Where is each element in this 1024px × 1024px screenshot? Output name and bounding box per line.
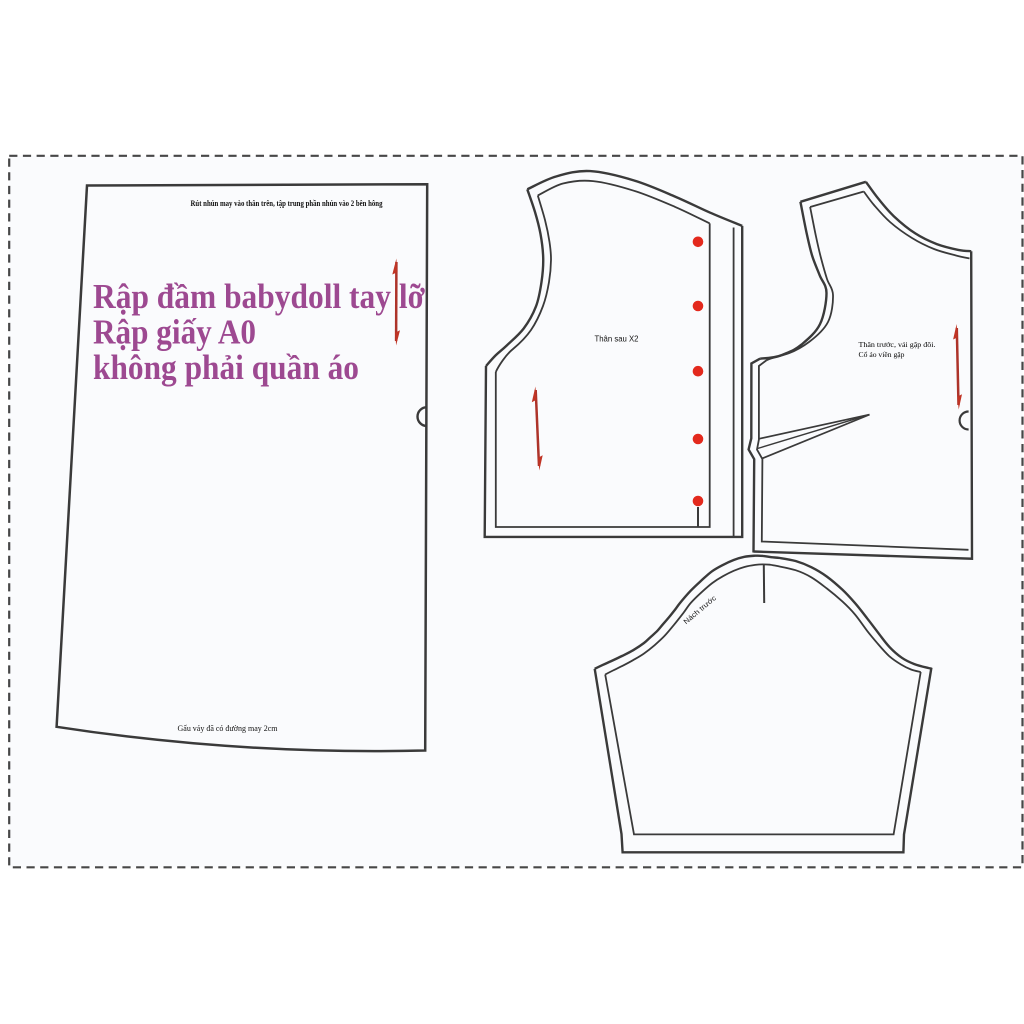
svg-text:Rập giấy A0: Rập giấy A0 [93,313,256,352]
svg-text:không phải quần áo: không phải quần áo [93,348,359,387]
svg-text:Thân sau X2: Thân sau X2 [595,334,639,344]
svg-text:Rút nhún may vào thân trên, tậ: Rút nhún may vào thân trên, tập trung ph… [191,198,384,208]
svg-text:Cổ áo viền gập: Cổ áo viền gập [859,350,905,359]
svg-text:Gấu váy đã có đường may 2cm: Gấu váy đã có đường may 2cm [178,723,278,733]
svg-text:Rập đầm babydoll tay lỡ: Rập đầm babydoll tay lỡ [93,277,426,316]
svg-text:Thân trước, vải gập đôi.: Thân trước, vải gập đôi. [859,340,936,349]
